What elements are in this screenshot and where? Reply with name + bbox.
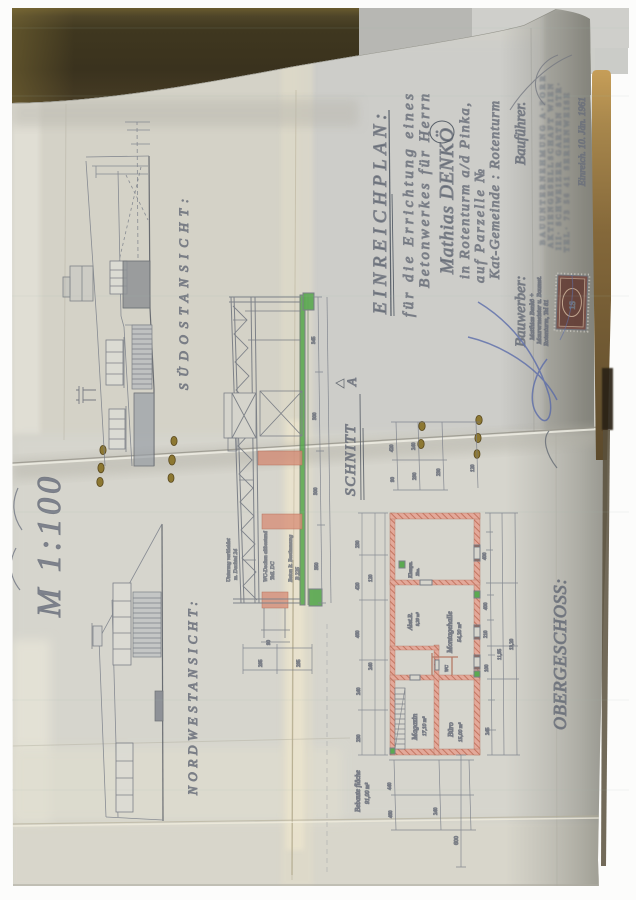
svg-text:210: 210 — [484, 630, 489, 638]
svg-text:SÜDOSTANSICHT:: SÜDOSTANSICHT: — [176, 196, 191, 390]
svg-text:WC-Decken altbestand: WC-Decken altbestand — [263, 531, 269, 582]
svg-text:Bauwerber:: Bauwerber: — [513, 275, 529, 347]
svg-text:Zim.: Zim. — [415, 568, 420, 576]
svg-text:240: 240 — [369, 662, 374, 670]
svg-text:1S: 1S — [568, 301, 577, 310]
svg-text:230: 230 — [356, 540, 361, 548]
svg-text:WC: WC — [444, 664, 449, 672]
svg-text:Maurermeister u. Baumst.: Maurermeister u. Baumst. — [536, 276, 543, 345]
svg-text:Matthias Benkö +: Matthias Benkö + — [529, 293, 536, 341]
svg-text:Büro: Büro — [446, 722, 455, 737]
svg-text:600: 600 — [454, 836, 460, 845]
svg-text:B 225: B 225 — [295, 567, 301, 580]
svg-text:SCHNITT: SCHNITT — [343, 423, 359, 496]
svg-text:Montagehalle: Montagehalle — [445, 611, 454, 654]
svg-text:460: 460 — [356, 630, 361, 638]
svg-text:400: 400 — [484, 602, 489, 610]
svg-text:300: 300 — [313, 412, 318, 420]
svg-text:in Rotenturm a/d Pinka,: in Rotenturm a/d Pinka, — [458, 103, 473, 279]
svg-text:Bauführer.: Bauführer. — [513, 102, 529, 165]
svg-text:230: 230 — [357, 734, 362, 742]
svg-text:240: 240 — [357, 687, 362, 695]
svg-text:M 1:100: M 1:100 — [31, 473, 68, 618]
svg-text:440: 440 — [388, 782, 393, 790]
svg-text:90: 90 — [267, 640, 272, 646]
svg-text:54,20 m²: 54,20 m² — [456, 622, 463, 642]
svg-text:100: 100 — [485, 664, 490, 672]
svg-text:91,00 m²: 91,00 m² — [365, 783, 371, 804]
svg-text:Beton lt. Bestimmung: Beton lt. Bestimmung — [288, 535, 294, 582]
svg-text:NORDWESTANSICHT:: NORDWESTANSICHT: — [185, 599, 200, 796]
svg-text:120: 120 — [369, 574, 374, 582]
svg-text:Abst.R.: Abst.R. — [408, 613, 414, 631]
svg-text:OBERGESCHOSS:: OBERGESCHOSS: — [550, 576, 570, 730]
svg-text:13,20: 13,20 — [510, 638, 515, 650]
svg-text:240: 240 — [434, 807, 439, 815]
svg-text:300: 300 — [314, 487, 319, 495]
svg-text:120: 120 — [471, 464, 476, 472]
svg-text:345: 345 — [312, 336, 317, 344]
svg-text:230: 230 — [437, 468, 442, 476]
svg-text:Teil. DC: Teil. DC — [270, 561, 276, 580]
svg-text:Einreich. 10. Jän. 1961: Einreich. 10. Jän. 1961 — [578, 97, 588, 187]
svg-text:90: 90 — [391, 477, 396, 483]
svg-text:Magazin: Magazin — [410, 714, 419, 742]
svg-text:Bebaute fläche: Bebaute fläche — [354, 770, 362, 812]
svg-text:Mathias DENKÖ: Mathias DENKÖ — [435, 128, 458, 275]
svg-text:TEL· 73 56 41 SERIENWEISE: TEL· 73 56 41 SERIENWEISE — [562, 92, 571, 252]
svg-text:295: 295 — [297, 659, 302, 667]
svg-text:A: A — [344, 378, 359, 387]
svg-text:290: 290 — [413, 472, 418, 480]
svg-text:Rotenturm, Tel 81: Rotenturm, Tel 81 — [543, 299, 550, 347]
svg-text:15,00 m²: 15,00 m² — [458, 722, 464, 742]
svg-text:m. Dachtel 24: m. Dachtel 24 — [232, 549, 239, 580]
svg-text:11,95: 11,95 — [498, 648, 503, 660]
svg-text:350: 350 — [315, 562, 320, 570]
svg-text:295: 295 — [259, 659, 264, 667]
svg-text:Kat-Gemeinde : Rotenturm: Kat-Gemeinde : Rotenturm — [488, 101, 503, 280]
svg-text:245: 245 — [486, 727, 491, 735]
svg-text:460: 460 — [389, 810, 394, 818]
svg-text:420: 420 — [390, 444, 395, 452]
svg-text:400: 400 — [483, 552, 488, 560]
svg-text:17,10 m²: 17,10 m² — [422, 716, 428, 736]
svg-text:Unterzug verkleidet: Unterzug verkleidet — [226, 538, 232, 582]
svg-text:240: 240 — [412, 442, 417, 450]
svg-text:Klempn.: Klempn. — [409, 561, 414, 579]
svg-text:EINREICHPLAN:: EINREICHPLAN: — [370, 112, 391, 315]
svg-text:420: 420 — [356, 582, 361, 590]
